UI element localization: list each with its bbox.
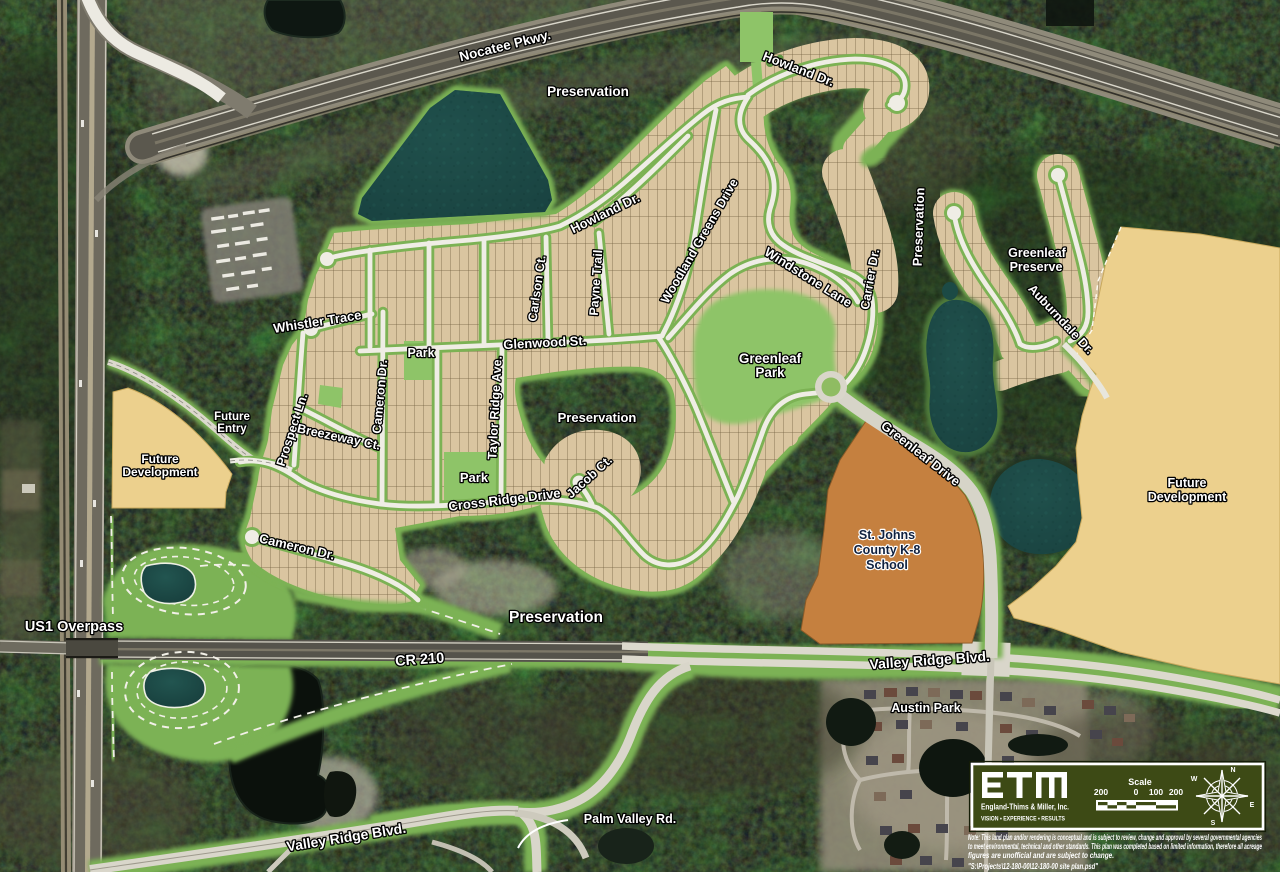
svg-text:N: N <box>1230 767 1235 774</box>
svg-text:Development: Development <box>122 465 197 479</box>
svg-text:England-Thims & Miller, Inc.: England-Thims & Miller, Inc. <box>981 803 1069 812</box>
svg-text:"S:\Projects\12-180-00\12-180-: "S:\Projects\12-180-00\12-180-00 site pl… <box>968 861 1099 871</box>
svg-text:W: W <box>1191 776 1198 783</box>
svg-text:VISION • EXPERIENCE • RESULTS: VISION • EXPERIENCE • RESULTS <box>981 816 1065 823</box>
svg-text:Palm Valley Rd.: Palm Valley Rd. <box>584 812 676 826</box>
svg-text:figures are unofficial and are: figures are unofficial and are subject t… <box>968 850 1114 860</box>
svg-text:Greenleaf: Greenleaf <box>1008 246 1067 260</box>
svg-text:S: S <box>1211 820 1216 827</box>
svg-text:Development: Development <box>1148 490 1227 504</box>
svg-text:Austin Park: Austin Park <box>891 701 961 715</box>
svg-text:Preservation: Preservation <box>509 609 603 626</box>
svg-text:Future: Future <box>1168 476 1207 490</box>
svg-text:County K-8: County K-8 <box>854 543 921 557</box>
svg-text:Park: Park <box>755 365 785 380</box>
svg-text:Park: Park <box>460 470 489 485</box>
svg-text:Preservation: Preservation <box>547 84 629 99</box>
svg-text:US1 Overpass: US1 Overpass <box>25 619 123 635</box>
svg-text:200: 200 <box>1169 787 1183 797</box>
svg-text:Preserve: Preserve <box>1010 260 1063 274</box>
svg-text:100: 100 <box>1149 787 1163 797</box>
svg-text:Scale: Scale <box>1128 777 1152 787</box>
svg-text:CR 210: CR 210 <box>395 650 445 669</box>
svg-text:Entry: Entry <box>217 423 247 435</box>
svg-text:Preservation: Preservation <box>910 187 928 266</box>
svg-text:Future: Future <box>141 452 179 466</box>
svg-text:Preservation: Preservation <box>558 410 637 425</box>
svg-text:E: E <box>1250 802 1255 809</box>
svg-text:Park: Park <box>407 346 434 360</box>
svg-text:School: School <box>866 558 908 572</box>
svg-text:0: 0 <box>1134 787 1139 797</box>
svg-text:Greenleaf: Greenleaf <box>739 351 802 366</box>
svg-text:St. Johns: St. Johns <box>859 528 915 542</box>
svg-text:Future: Future <box>214 411 250 423</box>
svg-text:200: 200 <box>1094 787 1108 797</box>
